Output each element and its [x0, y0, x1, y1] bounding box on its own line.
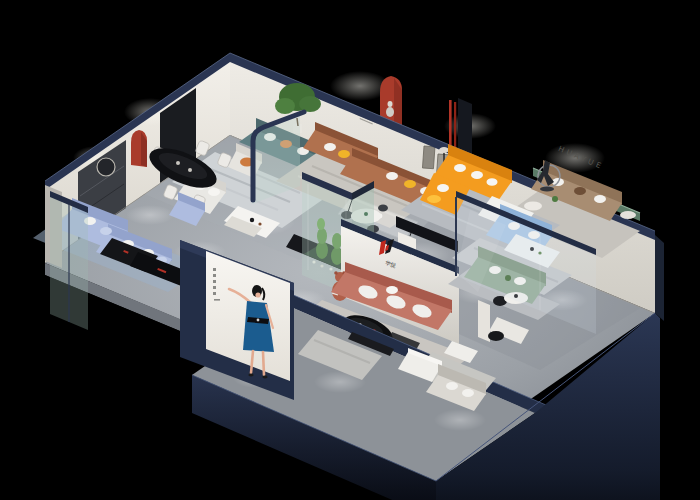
isometric-scene: HUAYUE — [0, 0, 700, 500]
small-plant — [552, 196, 558, 202]
east-wall-endcap — [655, 235, 664, 321]
round-mirror — [97, 158, 115, 176]
round-side-table — [524, 202, 542, 211]
round-side-table-2 — [620, 211, 636, 219]
west-end-glazing — [45, 185, 88, 330]
showroom-render: HUAYUE — [0, 0, 700, 500]
